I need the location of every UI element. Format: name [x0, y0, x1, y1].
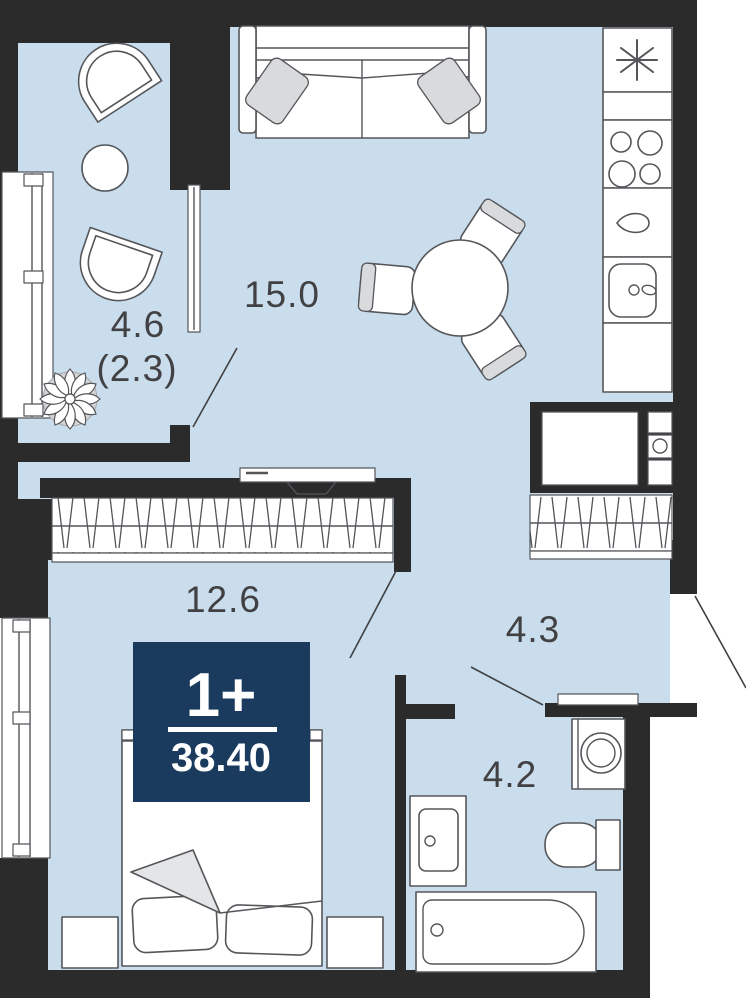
- wardrobe-hallway: [530, 495, 672, 559]
- bed-pillow-right: [225, 905, 313, 956]
- wall-bottom: [0, 970, 650, 998]
- room-label-hallway: 4.3: [506, 609, 560, 650]
- wall-entrance-stub: [670, 540, 697, 594]
- washing-machine: [572, 719, 625, 789]
- wall-left-lower: [0, 858, 48, 970]
- area-badge: 1+ 38.40: [133, 642, 310, 802]
- wall-bathroom-top-stub: [406, 704, 455, 719]
- wall-right: [673, 0, 697, 594]
- balcony-table: [82, 145, 128, 191]
- utility-shaft: [542, 412, 672, 485]
- badge-rooms-label: 1+: [186, 661, 257, 730]
- room-label-balcony: 4.6: [111, 304, 165, 345]
- toilet: [545, 820, 620, 870]
- balcony-window: [2, 172, 53, 418]
- wall-balcony-bottom: [18, 443, 172, 462]
- hallway-shelf: [558, 694, 638, 705]
- wardrobe-bedroom: [52, 498, 393, 562]
- dining-table: [412, 240, 508, 336]
- wall-balcony-divider: [170, 0, 230, 190]
- room-label-living: 15.0: [244, 274, 320, 315]
- kitchen-counter-end: [603, 323, 672, 392]
- bedroom-window: [2, 618, 50, 858]
- stove: [603, 120, 672, 188]
- wall-left-chunk: [0, 499, 53, 560]
- wall-bedroom-door-stub: [394, 478, 411, 572]
- kitchen-counter: [603, 92, 672, 120]
- bathroom-sink: [410, 796, 466, 886]
- wall-bathroom-right: [623, 717, 650, 972]
- wall-bathroom-left: [395, 675, 406, 972]
- kitchen: [603, 28, 672, 392]
- bathtub: [416, 892, 596, 972]
- kitchen-faucet: [629, 285, 639, 295]
- balcony-door-leaf: [188, 185, 200, 332]
- wall-left-mid: [0, 560, 48, 618]
- badge-area-value: 38.40: [171, 736, 271, 780]
- nightstand-right: [327, 917, 383, 968]
- badge-divider: [168, 727, 277, 732]
- nightstand-left: [62, 917, 118, 968]
- sofa: [239, 26, 486, 138]
- room-label-bathroom: 4.2: [483, 754, 537, 795]
- dining-chair: [358, 263, 416, 316]
- floor-plan: 1+ 38.40 15.0 4.6 (2.3) 12.6 4.3 4.2: [0, 0, 746, 998]
- room-label-balcony-secondary: (2.3): [96, 348, 177, 389]
- room-label-bedroom: 12.6: [185, 579, 261, 620]
- wall-balcony-stub: [170, 425, 190, 462]
